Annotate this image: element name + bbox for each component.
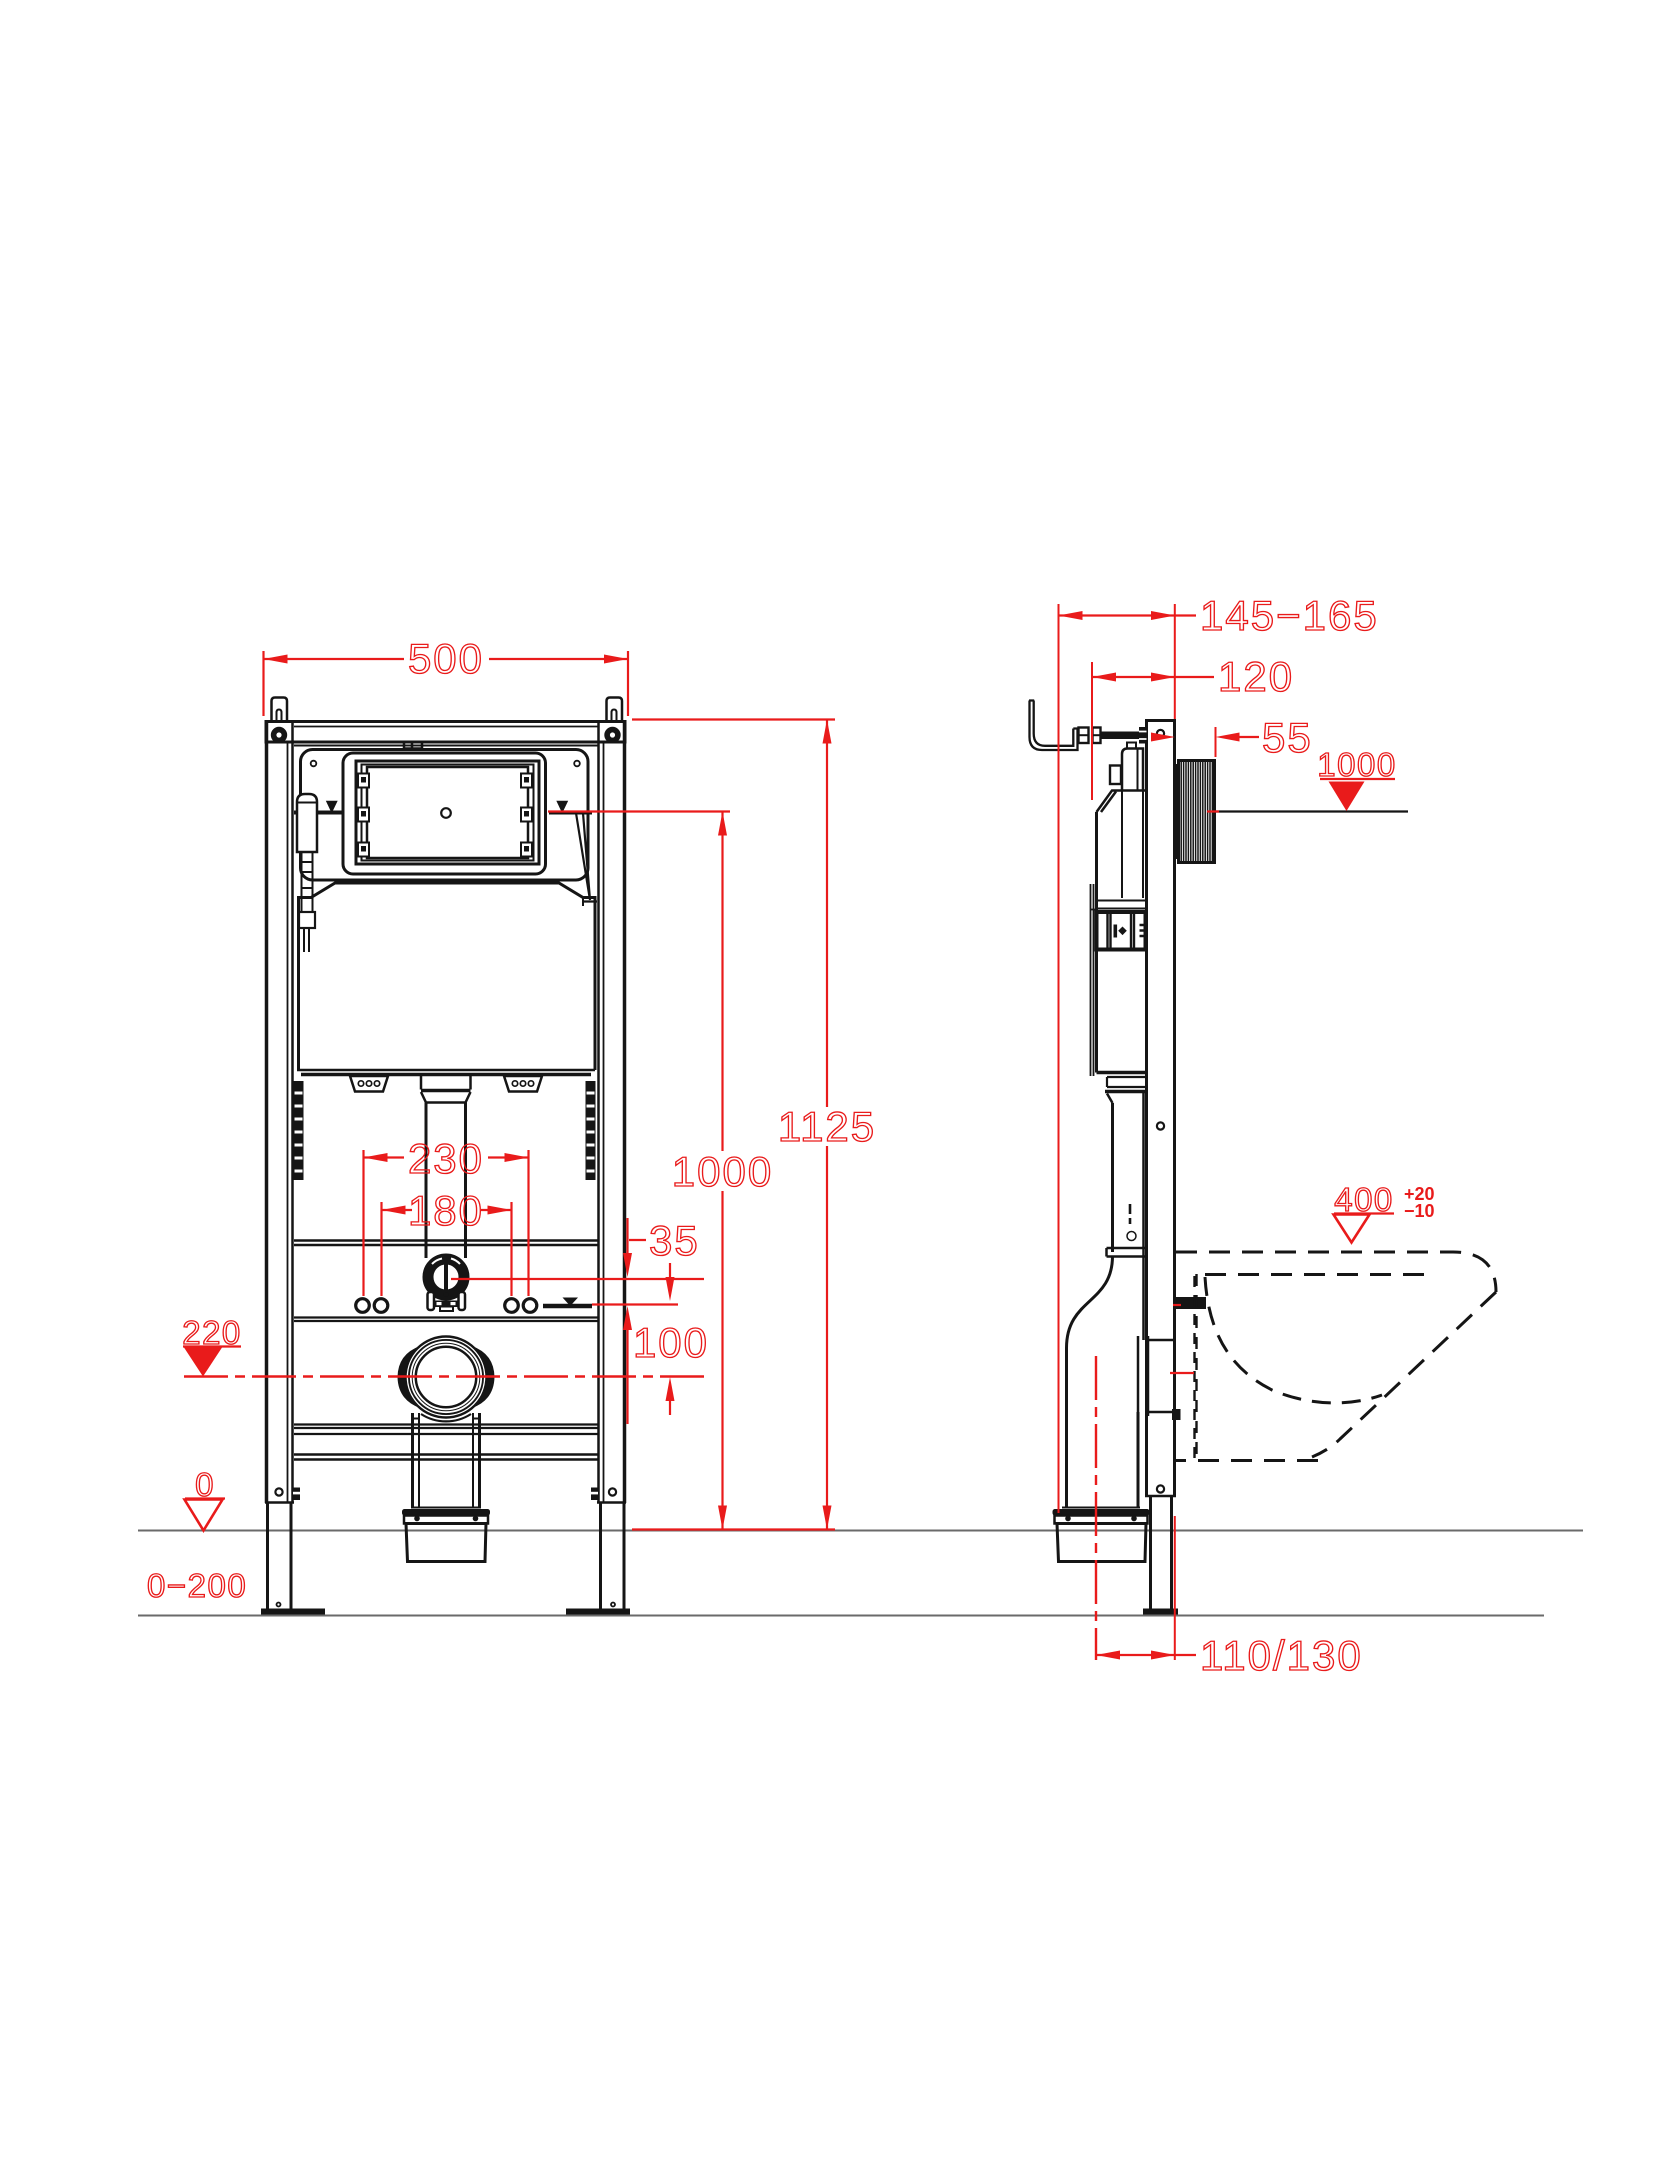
svg-text:110/130: 110/130 [1200,1632,1363,1679]
svg-text:1125: 1125 [778,1103,876,1150]
svg-text:500: 500 [408,635,484,682]
svg-text:1000: 1000 [672,1148,773,1195]
svg-text:400: 400 [1334,1181,1394,1218]
svg-text:180: 180 [408,1187,484,1234]
svg-text:230: 230 [408,1135,484,1182]
svg-text:1000: 1000 [1317,746,1396,783]
svg-text:0−200: 0−200 [147,1567,247,1604]
svg-text:35: 35 [649,1217,700,1264]
svg-text:100: 100 [633,1319,709,1366]
svg-text:0: 0 [195,1466,215,1503]
svg-text:120: 120 [1218,653,1294,700]
svg-text:55: 55 [1262,714,1313,761]
svg-text:220: 220 [182,1314,242,1351]
svg-text:−10: −10 [1404,1201,1435,1221]
svg-text:145−165: 145−165 [1200,592,1379,639]
